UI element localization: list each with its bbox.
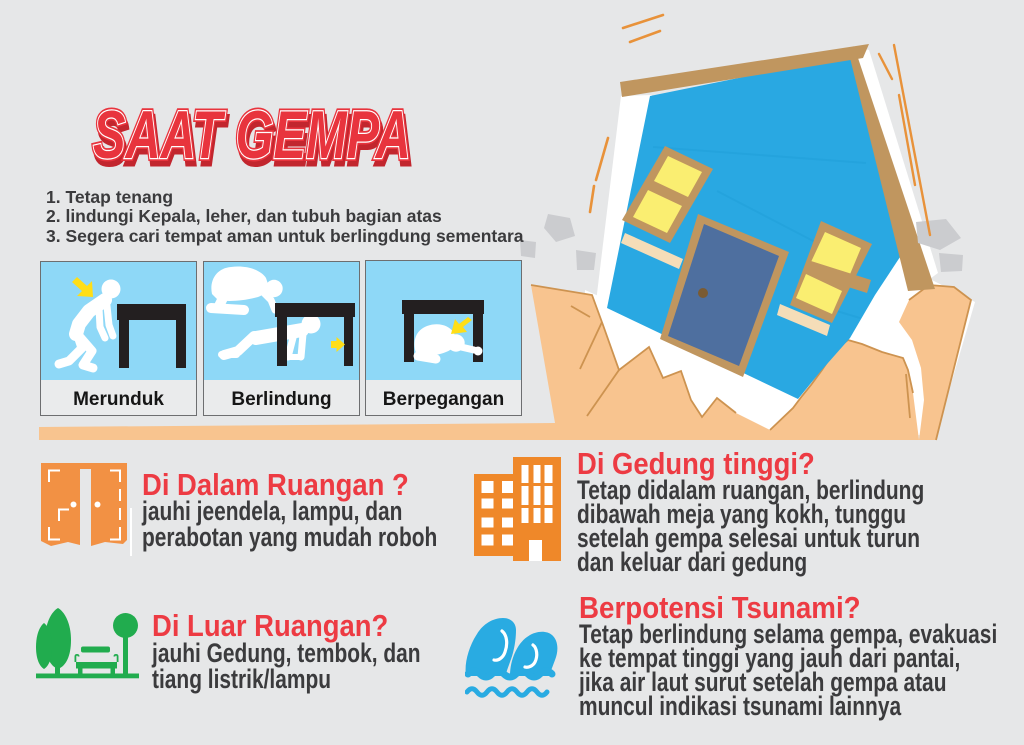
svg-text:SAAT GEMPA: SAAT GEMPA	[93, 96, 411, 173]
